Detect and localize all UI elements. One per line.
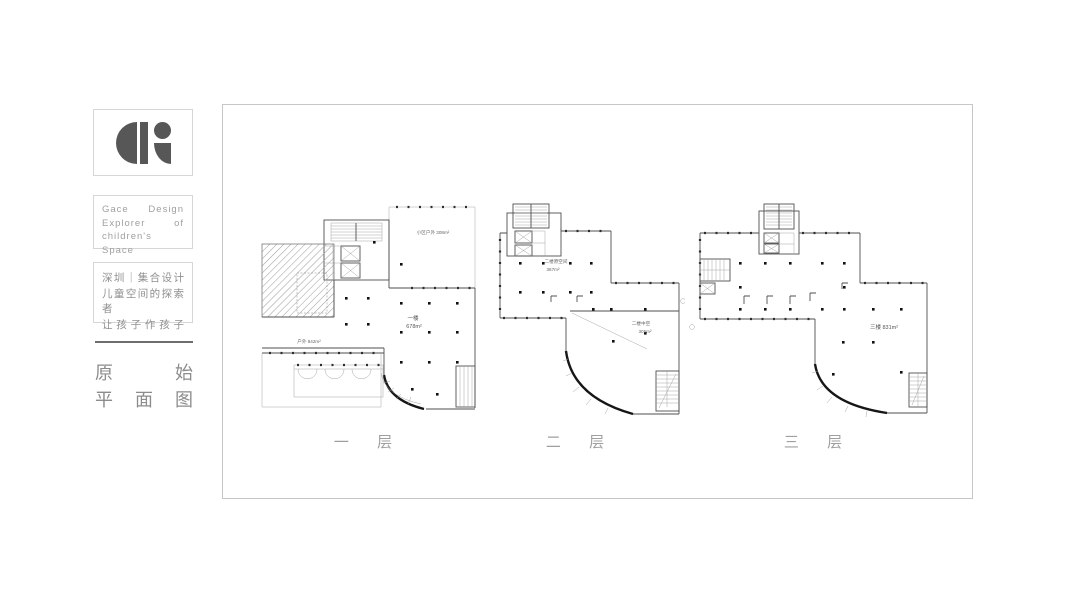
stair-elevator-core bbox=[507, 204, 561, 256]
page: Gace Design Explorer of children's Space… bbox=[0, 0, 1080, 608]
studio-line-2: 儿童空间的探索者 bbox=[102, 287, 184, 318]
caption-floor-1: 一 层 bbox=[303, 431, 423, 452]
gace-logo-icon bbox=[116, 122, 171, 164]
studio-line-3: 让孩子作孩子 bbox=[102, 318, 184, 334]
hatched-room bbox=[262, 244, 334, 317]
stairs-left bbox=[700, 259, 730, 294]
stairs-bottom-right bbox=[909, 373, 927, 407]
plan-board-frame: 小区户外 308m² bbox=[222, 104, 973, 499]
studio-text-box: 深圳｜集合设计 儿童空间的探索者 让孩子作孩子 bbox=[93, 262, 193, 323]
main-floor-label: 三楼 831m² bbox=[870, 323, 898, 331]
curved-wall bbox=[812, 364, 887, 417]
columns bbox=[519, 262, 647, 343]
logo-right-column bbox=[154, 122, 171, 164]
floor-plan-1: 小区户外 308m² bbox=[261, 203, 479, 415]
brand-line-2: Explorer of bbox=[102, 217, 184, 231]
stairs-bottom-right bbox=[656, 371, 679, 411]
axis-bubble bbox=[690, 325, 695, 330]
caption-floor-3: 三 层 bbox=[753, 431, 873, 452]
section-title-line-1: 原 始 bbox=[95, 360, 193, 387]
floor-plan-2: 二楼中空 305m² 二楼原空间 367m² bbox=[493, 201, 685, 421]
void-area: 305m² bbox=[638, 329, 651, 334]
brand-line-3: children's Space bbox=[102, 230, 184, 257]
original-space-label: 二楼原空间 bbox=[545, 258, 568, 265]
scalloped-canopy bbox=[294, 365, 383, 397]
section-title: 原 始 平 面 图 bbox=[95, 360, 193, 414]
original-space-area: 367m² bbox=[546, 267, 559, 272]
logo-bar-shape bbox=[140, 122, 148, 164]
logo-quarter-shape bbox=[154, 143, 171, 164]
columns bbox=[345, 241, 459, 396]
brand-text-box: Gace Design Explorer of children's Space bbox=[93, 195, 193, 249]
outdoor-top-label: 小区户外 308m² bbox=[417, 229, 450, 236]
curved-wall bbox=[381, 373, 424, 409]
main-floor-label: 一楼 bbox=[407, 314, 419, 322]
stair-room-bottom-right bbox=[456, 366, 475, 407]
logo-dot-shape bbox=[154, 122, 171, 139]
studio-line-1: 深圳｜集合设计 bbox=[102, 271, 184, 287]
logo-box bbox=[93, 109, 193, 176]
brand-line-1: Gace Design bbox=[102, 203, 184, 217]
outline-walls bbox=[700, 233, 927, 413]
caption-floor-2: 二 层 bbox=[515, 431, 635, 452]
section-title-line-2: 平 面 图 bbox=[95, 387, 193, 414]
main-floor-area: 678m² bbox=[406, 324, 422, 330]
void-label: 二楼中空 bbox=[632, 320, 651, 327]
sidebar-divider bbox=[95, 341, 193, 343]
floor-plan-3: 三楼 831m² bbox=[682, 201, 934, 421]
logo-halfcircle-shape bbox=[116, 122, 137, 164]
outdoor-area-top: 小区户外 308m² bbox=[389, 207, 475, 288]
stair-elevator-core bbox=[759, 204, 799, 254]
void-leader-line bbox=[572, 313, 647, 349]
curved-wall bbox=[563, 351, 633, 414]
outdoor-bottom-label: 户外 842m² bbox=[297, 338, 321, 345]
